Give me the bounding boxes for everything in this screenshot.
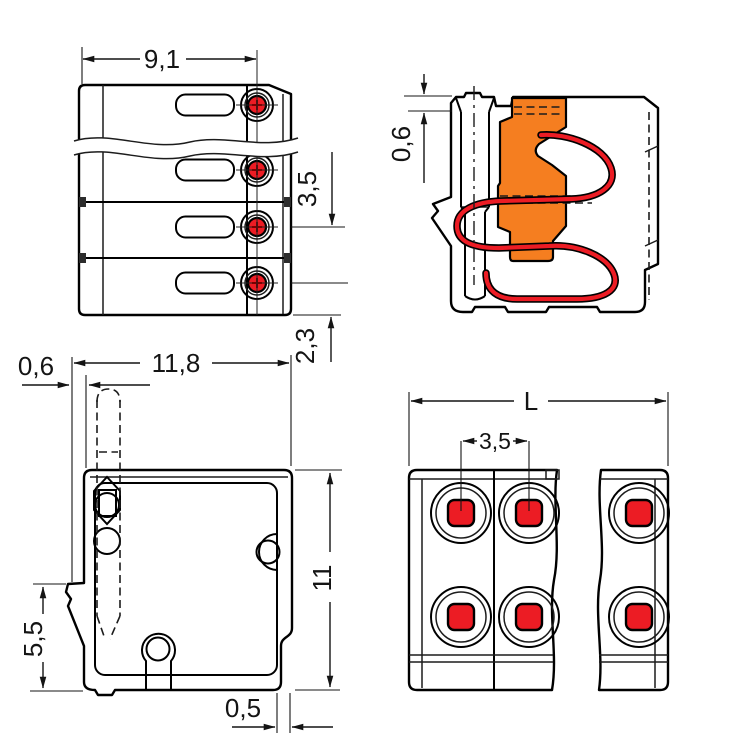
contact bbox=[499, 587, 559, 647]
dim-label-front-width: 9,1 bbox=[144, 44, 180, 74]
dim-label-front-pitch: 3,5 bbox=[292, 171, 322, 207]
bottom-keyhole bbox=[142, 634, 175, 690]
top-contacts bbox=[431, 483, 669, 647]
push-button-slot bbox=[176, 95, 234, 116]
dimension-height: 11 bbox=[295, 470, 342, 690]
dimension-depth: 11,8 bbox=[74, 348, 291, 466]
edge-notch bbox=[79, 253, 86, 263]
contact bbox=[609, 587, 669, 647]
edge-notch bbox=[284, 253, 291, 263]
dim-label-depth: 11,8 bbox=[152, 348, 201, 378]
push-button-slot bbox=[176, 217, 234, 238]
front-view: 9,1 3,5 2,3 bbox=[74, 44, 348, 364]
dimension-edge-inset: 0,5 bbox=[225, 693, 333, 733]
keyhole-hole bbox=[147, 638, 170, 661]
dimension-latch-height: 5,5 bbox=[18, 584, 83, 691]
side-view: 0,6 11,8 5,5 11 bbox=[18, 348, 342, 733]
top-view: L 3,5 bbox=[409, 386, 669, 690]
technical-drawing-page: 9,1 3,5 2,3 bbox=[0, 0, 750, 750]
dimension-rim-height: 0,6 bbox=[386, 74, 452, 183]
push-button-slot bbox=[176, 273, 234, 294]
dim-label-top-pitch: 3,5 bbox=[479, 428, 511, 454]
dim-label-pin-offset: 2,3 bbox=[290, 328, 320, 364]
inner-face-outline bbox=[95, 483, 277, 675]
contact bbox=[431, 587, 491, 647]
edge-notch bbox=[79, 197, 86, 207]
dim-label-latch-depth: 0,6 bbox=[18, 351, 54, 381]
terminal-block-drawing: 9,1 3,5 2,3 bbox=[0, 0, 750, 750]
contact bbox=[609, 483, 669, 543]
dim-label-latch-height: 5,5 bbox=[18, 621, 48, 657]
dimension-front-pitch: 3,5 bbox=[291, 152, 348, 283]
dim-label-rim-height: 0,6 bbox=[386, 126, 416, 162]
push-button bbox=[498, 98, 566, 261]
edge-notch bbox=[284, 197, 291, 207]
dim-label-height: 11 bbox=[307, 565, 337, 592]
dimension-pin-offset: 2,3 bbox=[290, 315, 341, 364]
side-boss bbox=[259, 534, 277, 570]
dim-label-length: L bbox=[524, 386, 538, 416]
dim-label-edge-inset: 0,5 bbox=[225, 693, 261, 723]
push-button-slot bbox=[176, 160, 234, 181]
section-view: 0,6 bbox=[386, 74, 658, 312]
funnel-circle bbox=[94, 528, 120, 554]
dimension-length: L bbox=[409, 386, 668, 466]
push-button-slots bbox=[176, 95, 234, 294]
dimension-front-width: 9,1 bbox=[82, 44, 256, 84]
break-line bbox=[74, 138, 298, 159]
